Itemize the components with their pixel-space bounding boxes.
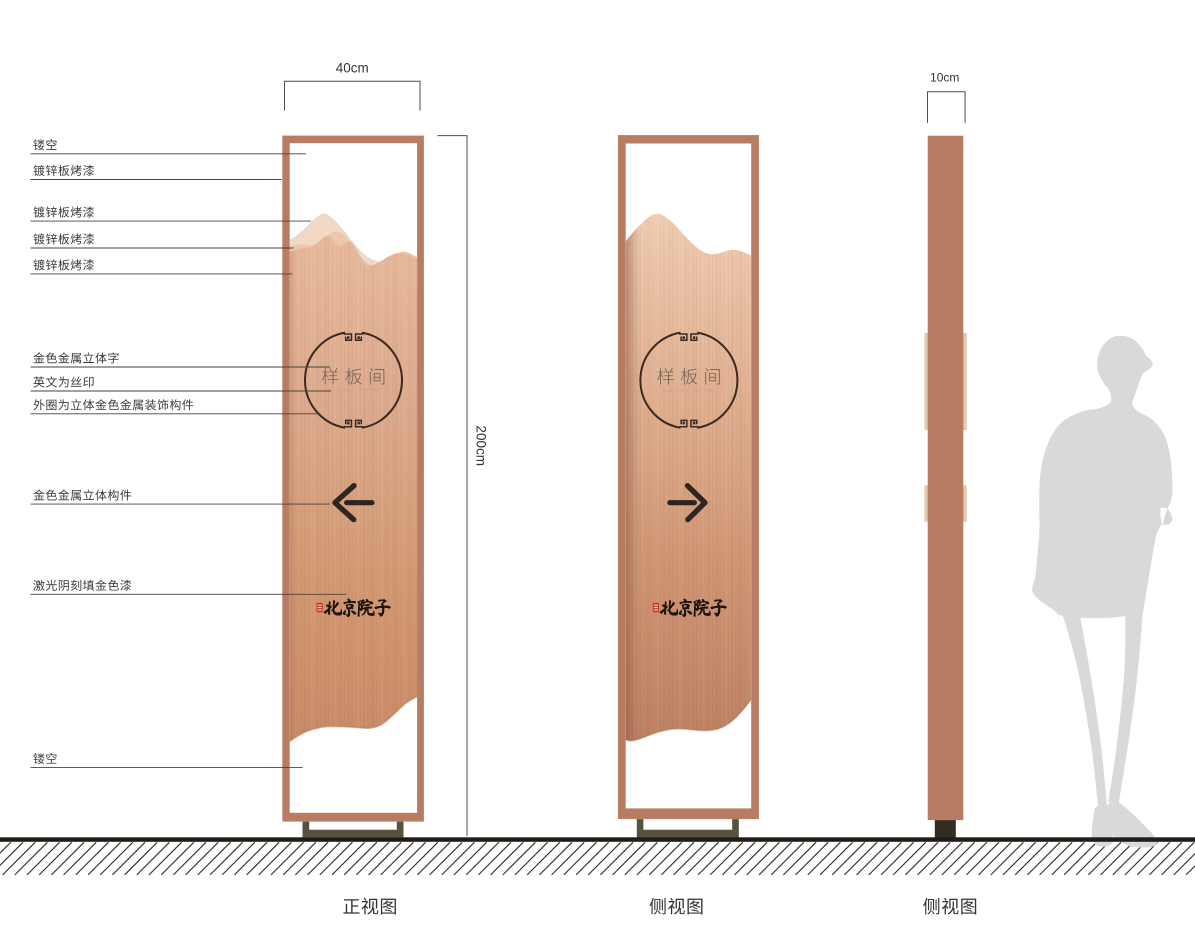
- svg-text:SAMPLE ROOM: SAMPLE ROOM: [328, 388, 380, 394]
- svg-text:10cm: 10cm: [930, 71, 959, 85]
- svg-text:40cm: 40cm: [336, 61, 369, 76]
- svg-text:200cm: 200cm: [474, 425, 489, 466]
- svg-text:SAMPLE ROOM: SAMPLE ROOM: [663, 388, 715, 394]
